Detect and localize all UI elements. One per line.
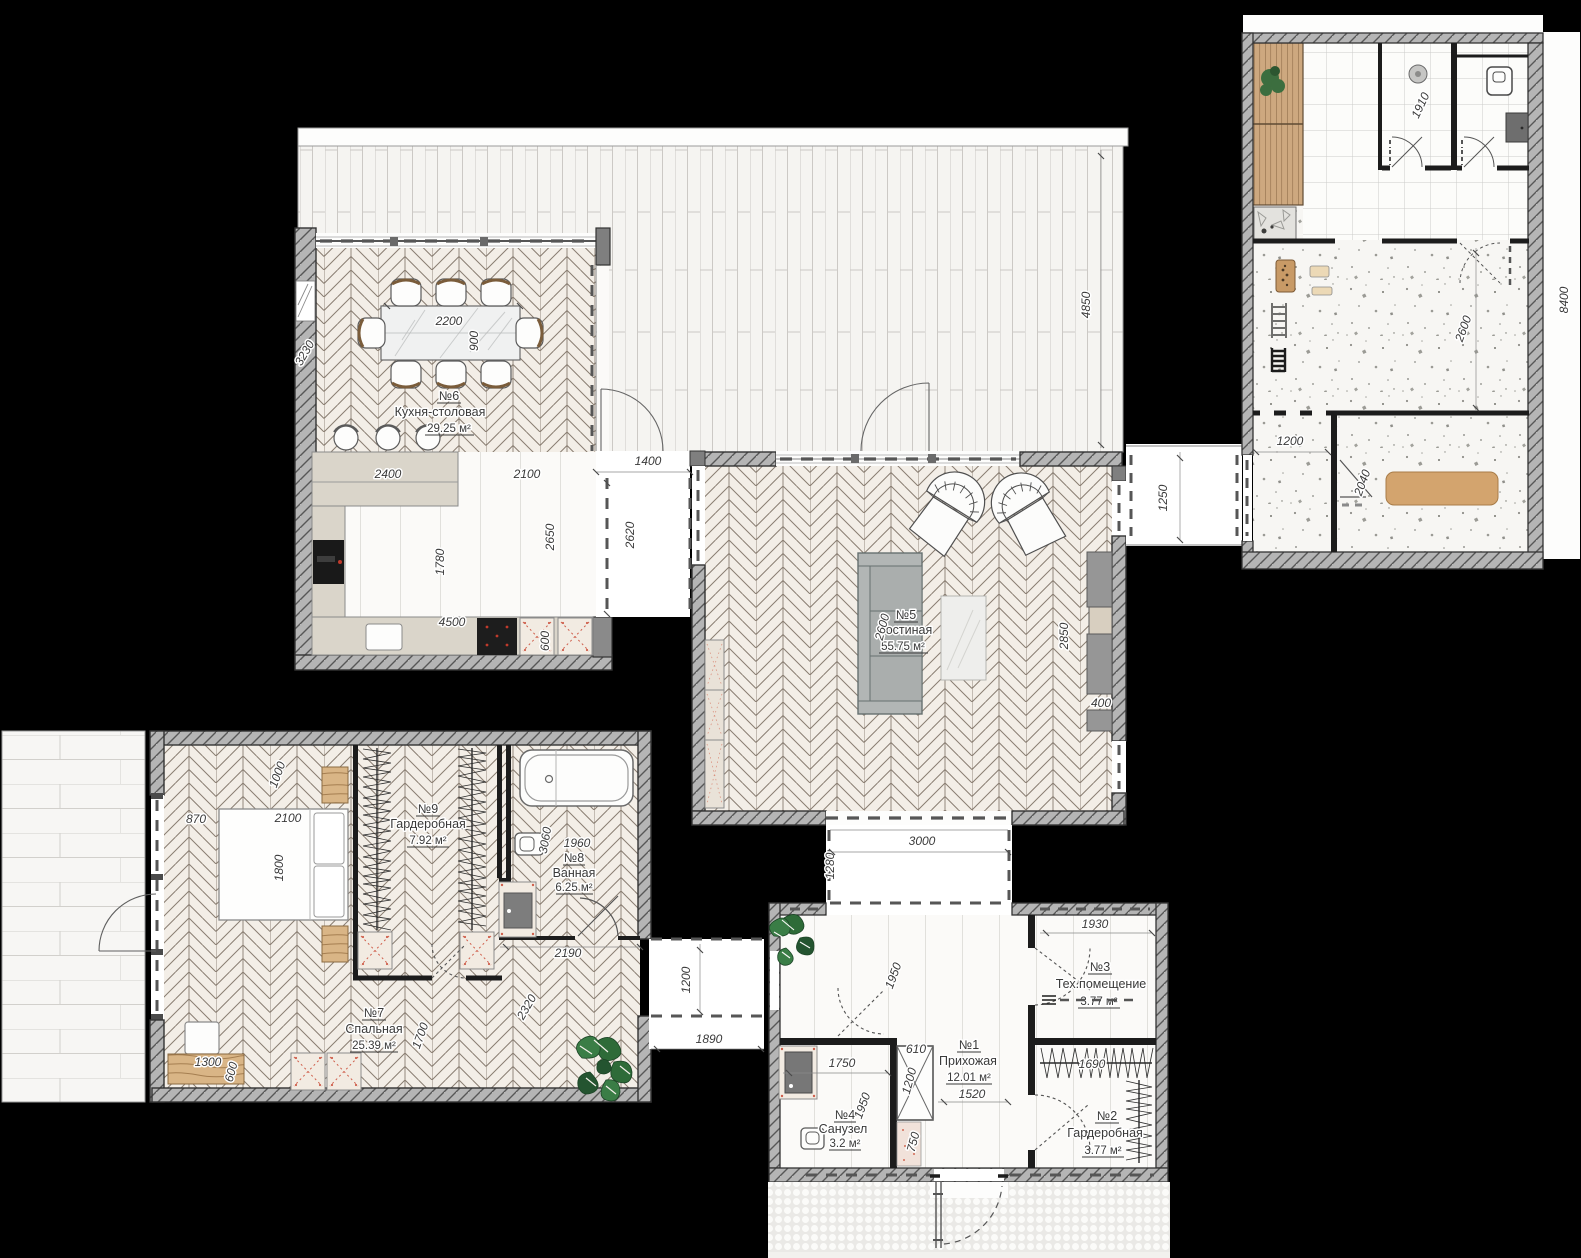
svg-text:1200: 1200 [1277, 434, 1304, 448]
svg-text:2620: 2620 [623, 521, 637, 549]
svg-text:1960: 1960 [564, 836, 591, 850]
svg-text:600: 600 [538, 631, 552, 651]
svg-text:400: 400 [1091, 696, 1111, 710]
svg-text:1690: 1690 [1079, 1057, 1106, 1071]
svg-text:870: 870 [186, 812, 206, 826]
svg-text:3.77 м²: 3.77 м² [1084, 1145, 1121, 1157]
svg-text:1780: 1780 [433, 548, 447, 575]
svg-text:№9: №9 [418, 802, 438, 816]
svg-text:2100: 2100 [513, 467, 541, 481]
svg-text:№7: №7 [364, 1006, 384, 1020]
svg-text:12.01 м²: 12.01 м² [947, 1072, 991, 1084]
svg-text:№5: №5 [896, 608, 916, 622]
svg-text:Гардеробная: Гардеробная [1067, 1126, 1143, 1140]
svg-text:25.39 м²: 25.39 м² [352, 1040, 396, 1052]
svg-text:№6: №6 [439, 389, 459, 403]
svg-text:№2: №2 [1097, 1109, 1117, 1123]
svg-text:1520: 1520 [959, 1087, 986, 1101]
svg-text:Прихожая: Прихожая [939, 1054, 997, 1068]
svg-text:Тех.помещение: Тех.помещение [1056, 977, 1147, 991]
svg-text:610: 610 [906, 1042, 926, 1056]
svg-text:1890: 1890 [696, 1032, 723, 1046]
svg-text:№3: №3 [1090, 960, 1110, 974]
svg-text:1800: 1800 [272, 854, 286, 881]
svg-text:3.77 м²: 3.77 м² [1080, 996, 1117, 1008]
svg-text:2100: 2100 [274, 811, 302, 825]
svg-text:55.75 м²: 55.75 м² [881, 641, 925, 653]
svg-text:2190: 2190 [554, 946, 582, 960]
svg-text:3000: 3000 [909, 834, 936, 848]
svg-text:1750: 1750 [829, 1056, 856, 1070]
svg-text:7.92 м²: 7.92 м² [409, 835, 446, 847]
svg-text:Кухня-столовая: Кухня-столовая [395, 405, 486, 419]
svg-text:№8: №8 [564, 851, 584, 865]
svg-text:1200: 1200 [679, 966, 693, 993]
svg-text:2200: 2200 [435, 314, 463, 328]
svg-text:2850: 2850 [1057, 622, 1071, 650]
svg-text:3.2 м²: 3.2 м² [830, 1138, 861, 1150]
svg-text:2650: 2650 [543, 523, 557, 551]
svg-text:1930: 1930 [1082, 917, 1109, 931]
svg-text:2400: 2400 [374, 467, 402, 481]
svg-text:1300: 1300 [195, 1055, 222, 1069]
svg-text:8400: 8400 [1557, 286, 1571, 313]
svg-text:Спальная: Спальная [345, 1022, 402, 1036]
svg-text:Гардеробная: Гардеробная [390, 817, 466, 831]
svg-text:6.25 м²: 6.25 м² [555, 882, 592, 894]
svg-text:1250: 1250 [1156, 484, 1170, 511]
svg-text:№1: №1 [959, 1038, 979, 1052]
svg-text:1400: 1400 [635, 454, 662, 468]
svg-text:29.25 м²: 29.25 м² [427, 423, 471, 435]
svg-text:900: 900 [467, 331, 481, 351]
svg-text:Санузел: Санузел [819, 1122, 868, 1136]
svg-text:1280: 1280 [823, 852, 837, 879]
svg-text:Ванная: Ванная [553, 866, 596, 880]
svg-text:4500: 4500 [439, 615, 466, 629]
svg-text:4850: 4850 [1079, 291, 1093, 318]
